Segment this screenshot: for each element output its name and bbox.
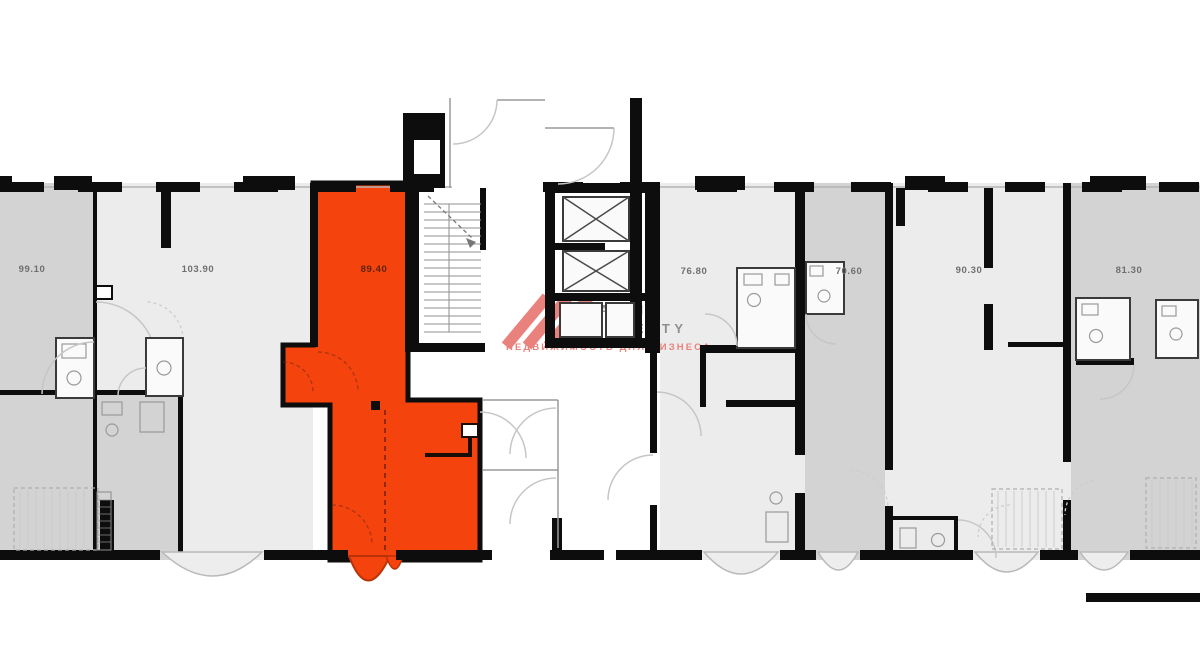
unit-area-label: 99.10 bbox=[19, 264, 46, 275]
entrance-door-arc-icon bbox=[349, 556, 389, 581]
door-arc-icon bbox=[1080, 552, 1128, 570]
unit-area-label: 76.80 bbox=[681, 266, 708, 277]
unit-5-floor bbox=[800, 183, 890, 560]
utility-shaft bbox=[560, 303, 602, 337]
unit-area-label: 81.30 bbox=[1116, 265, 1143, 276]
door-arc-icon bbox=[975, 552, 1038, 572]
door-arc-icon bbox=[162, 552, 262, 576]
bathroom-pod bbox=[1076, 298, 1130, 360]
unit-area-label: 90.30 bbox=[956, 265, 983, 276]
door-swing-icon bbox=[558, 128, 614, 184]
utility-shaft bbox=[606, 303, 634, 337]
unit-area-label: 70.60 bbox=[836, 266, 863, 277]
floorplan-page: MALINA PROPERTY НЕДВИЖИМОСТЬ ДЛЯ БИЗНЕСА bbox=[0, 0, 1200, 647]
duct-box bbox=[96, 286, 112, 299]
bathroom-pod bbox=[737, 268, 795, 348]
bathroom-pod bbox=[146, 338, 183, 396]
door-arc-icon bbox=[704, 552, 778, 574]
unit-area-label-highlighted: 89.40 bbox=[361, 264, 388, 275]
elevators bbox=[560, 197, 634, 337]
floorplan-drawing: MALINA PROPERTY НЕДВИЖИМОСТЬ ДЛЯ БИЗНЕСА bbox=[0, 0, 1200, 647]
column bbox=[371, 401, 380, 410]
duct-box bbox=[462, 424, 478, 437]
door-arc-icon bbox=[818, 552, 858, 570]
unit-area-label: 103.90 bbox=[182, 264, 215, 275]
unit-6-floor bbox=[890, 183, 1067, 560]
